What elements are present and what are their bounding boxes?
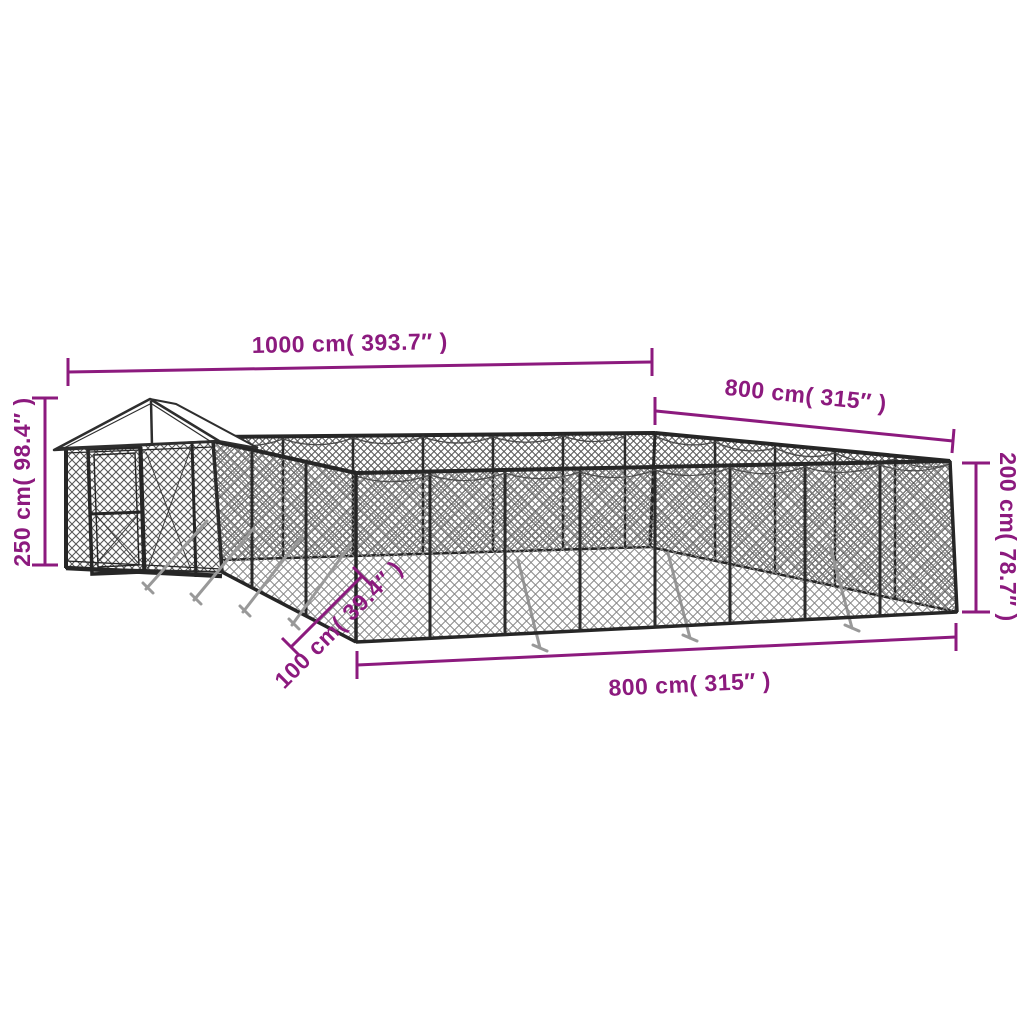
diagram-canvas: 1000 cm( 393.7″ ) 800 cm( 315″ ) 250 cm(… — [0, 0, 1024, 1024]
front-right-wall — [356, 461, 957, 642]
roof-center-pole — [151, 401, 152, 446]
dimension-top-width-label: 1000 cm( 393.7″ ) — [252, 328, 448, 358]
dimension-top-width: 1000 cm( 393.7″ ) — [68, 328, 652, 386]
dimension-upper-right-depth-label: 800 cm( 315″ ) — [724, 374, 888, 416]
entry-hut — [66, 441, 222, 577]
kennel-dimension-diagram: 1000 cm( 393.7″ ) 800 cm( 315″ ) 250 cm(… — [0, 0, 1024, 1024]
door-mid-rail — [90, 512, 143, 514]
entry-roof — [54, 399, 258, 450]
dimension-left-height-label: 250 cm( 98.4″ ) — [9, 397, 35, 566]
dimension-left-height: 250 cm( 98.4″ ) — [9, 397, 58, 566]
dimension-right-height: 200 cm( 78.7″ ) — [962, 452, 1021, 621]
dimension-bottom-front-label: 800 cm( 315″ ) — [608, 667, 772, 701]
dimension-right-height-label: 200 cm( 78.7″ ) — [995, 452, 1021, 621]
